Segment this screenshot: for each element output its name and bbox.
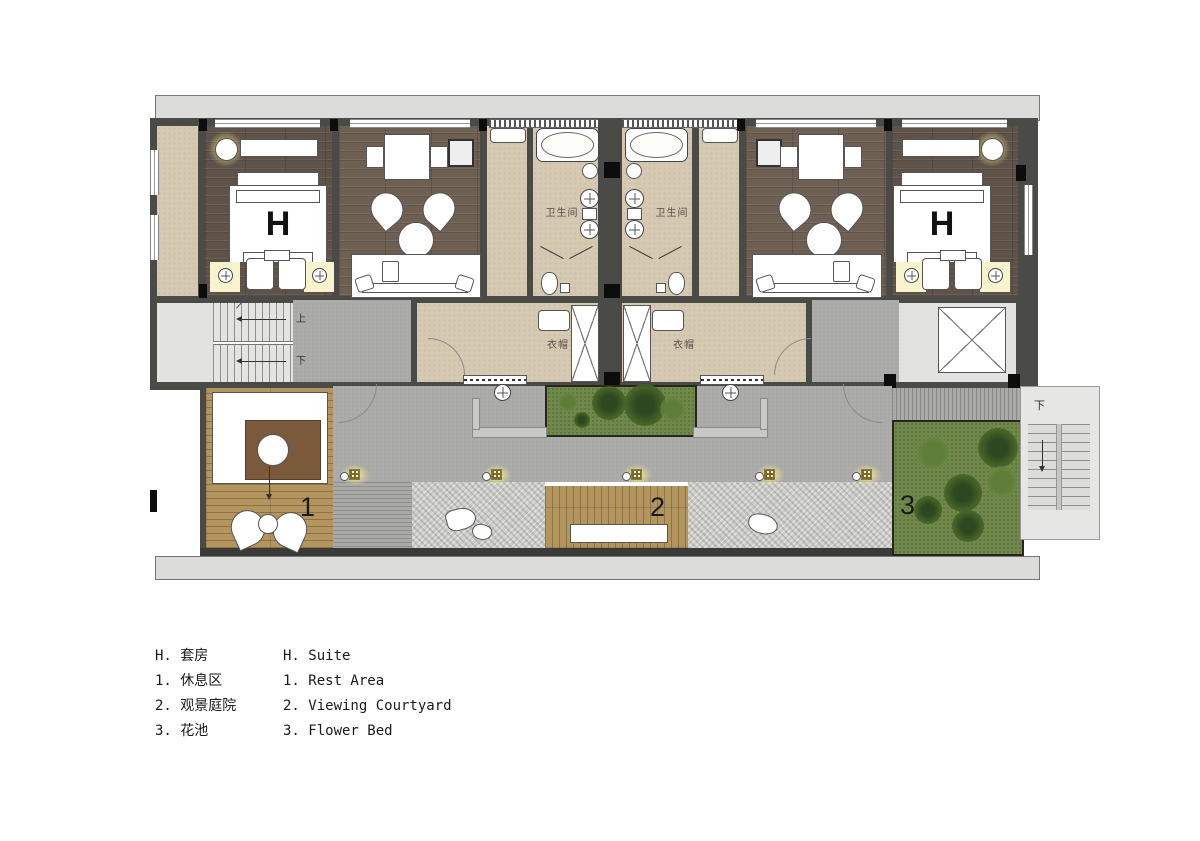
stair-up-label: 上 — [296, 314, 306, 326]
dining-table — [384, 134, 430, 180]
suite-left-marker: H — [266, 205, 291, 243]
column — [479, 119, 487, 131]
exterior-stairs-arrow-line — [1042, 440, 1043, 466]
wardrobe-right-label: 衣帽 — [666, 340, 702, 352]
bush — [574, 412, 590, 428]
legend-zh: 1. 休息区 — [155, 669, 283, 694]
sink — [625, 189, 644, 208]
sofa-tray — [833, 261, 850, 282]
bidet-box — [560, 283, 570, 293]
vanity-box — [582, 208, 597, 220]
bed-pillows — [236, 190, 320, 203]
floor-plan-page: H 卫生间 卫生间 — [0, 0, 1200, 841]
window-living-right — [756, 119, 876, 128]
column — [884, 119, 892, 131]
legend-en: 3. Flower Bed — [283, 719, 393, 744]
wall-light-icon — [491, 469, 502, 480]
wardrobe-bench — [652, 310, 684, 331]
planter-ledge-right — [693, 427, 768, 438]
column — [199, 119, 207, 131]
planter-return-right — [760, 398, 768, 430]
deck-arrow-line — [269, 466, 270, 494]
dining-chair — [366, 146, 384, 168]
stool — [278, 258, 306, 290]
bush — [916, 436, 950, 470]
bush — [914, 496, 942, 524]
window-bedroom-right — [902, 119, 1007, 128]
bidet-box — [656, 283, 666, 293]
bush — [944, 474, 982, 512]
stair-mid-divider — [213, 341, 293, 345]
bed-pillows — [900, 190, 984, 203]
sink — [580, 189, 599, 208]
exterior-stairs-arrowhead — [1039, 466, 1045, 472]
wall-light-dot — [755, 472, 764, 481]
window-west-wall-a — [150, 150, 159, 195]
bush — [660, 396, 686, 422]
downlight — [218, 268, 233, 283]
floor-light — [722, 384, 739, 401]
window-west-wall-b — [150, 215, 159, 260]
bush — [592, 386, 626, 420]
side-table — [264, 250, 290, 261]
legend-en: H. Suite — [283, 644, 350, 669]
wardrobe-bench — [538, 310, 570, 331]
stool — [922, 258, 950, 290]
window-living-left — [350, 119, 470, 128]
wall-light-icon — [349, 469, 360, 480]
legend-en: 2. Viewing Courtyard — [283, 694, 452, 719]
elevator — [938, 307, 1006, 373]
dining-chair — [844, 146, 862, 168]
legend-en: 1. Rest Area — [283, 669, 384, 694]
window-bath-right — [622, 119, 737, 128]
bush — [986, 466, 1018, 498]
legend-zh: H. 套房 — [155, 644, 283, 669]
stair-up-arrow-line — [242, 319, 286, 320]
legend-row: 2. 观景庭院2. Viewing Courtyard — [155, 694, 555, 719]
dining-table — [798, 134, 844, 180]
table-lamp — [981, 138, 1004, 161]
bathroom-right-label: 卫生间 — [652, 208, 692, 220]
shaft-column-top — [604, 162, 620, 178]
wall-light-dot — [340, 472, 349, 481]
stair-down-arrowhead — [236, 358, 242, 364]
side-corridor-left — [157, 126, 198, 296]
console-niche-left — [490, 128, 526, 143]
column — [150, 490, 157, 512]
console-niche-right — [702, 128, 738, 143]
suite-right-marker: H — [930, 205, 955, 243]
downlight — [988, 268, 1003, 283]
wall-light-icon — [631, 469, 642, 480]
shaft-column-mid — [604, 284, 620, 298]
vanity-box — [627, 208, 642, 220]
floor-light — [494, 384, 511, 401]
hall-right-floor — [812, 300, 899, 382]
viewing-courtyard-marker: 2 — [650, 492, 665, 523]
legend-row: 1. 休息区1. Rest Area — [155, 669, 555, 694]
bathtub-basin — [630, 132, 683, 158]
flower-bed-marker: 3 — [900, 490, 915, 521]
sink — [580, 220, 599, 239]
downlight — [312, 268, 327, 283]
legend: H. 套房H. Suite 1. 休息区1. Rest Area 2. 观景庭院… — [155, 644, 555, 744]
planter-return-left — [472, 398, 480, 430]
stair-down-label: 下 — [296, 356, 306, 368]
coffee-table — [806, 222, 842, 258]
planter-ledge-left — [472, 427, 547, 438]
dining-chair — [780, 146, 798, 168]
bathtub-basin — [541, 132, 594, 158]
terrace-south-wall — [200, 548, 892, 556]
column — [199, 284, 207, 298]
tv-console — [240, 139, 318, 157]
window-bath-left — [489, 119, 598, 128]
flowerbed-paving — [892, 388, 1020, 420]
lounge-table — [257, 434, 289, 466]
column — [737, 119, 745, 131]
exterior-stairs-stringer — [1056, 424, 1062, 510]
stair-landing — [157, 303, 213, 382]
niche-left-floor — [487, 126, 527, 296]
bush — [558, 392, 578, 412]
wardrobe-closet-right — [623, 305, 651, 382]
deck-arrowhead — [266, 494, 272, 500]
coffee-table — [398, 222, 434, 258]
bottom-eave — [155, 556, 1040, 580]
side-table — [940, 250, 966, 261]
sofa-seat — [362, 283, 468, 293]
wall-light-dot — [852, 472, 861, 481]
column — [1016, 165, 1026, 181]
legend-zh: 2. 观景庭院 — [155, 694, 283, 719]
terrace-steps — [333, 482, 412, 548]
dining-chair — [430, 146, 448, 168]
hall-left-floor — [293, 300, 411, 382]
column — [330, 119, 338, 131]
stool — [246, 258, 274, 290]
wall-light-dot — [622, 472, 631, 481]
bath-stool — [626, 163, 642, 179]
toilet — [541, 272, 558, 295]
wall-light-icon — [764, 469, 775, 480]
legend-row: H. 套房H. Suite — [155, 644, 555, 669]
stair-up-arrowhead — [236, 316, 242, 322]
legend-zh: 3. 花池 — [155, 719, 283, 744]
tv-set — [756, 139, 782, 167]
window-bedroom-left — [215, 119, 320, 128]
rest-area-marker: 1 — [300, 492, 315, 523]
window-east-wall — [1024, 185, 1033, 255]
tv-set — [448, 139, 474, 167]
downlight — [904, 268, 919, 283]
column — [1008, 374, 1020, 388]
courtyard-bench — [570, 524, 668, 543]
exterior-stairs-down-label: 下 — [1034, 400, 1045, 412]
bath-stool — [582, 163, 598, 179]
sofa-seat — [763, 283, 869, 293]
gravel-right — [688, 482, 892, 548]
bush — [952, 510, 984, 542]
sofa-tray — [382, 261, 399, 282]
wall-light-icon — [861, 469, 872, 480]
wardrobe-left-label: 衣帽 — [540, 340, 576, 352]
niche-right-floor — [699, 126, 739, 296]
deck-side-table — [258, 514, 278, 534]
table-lamp — [215, 138, 238, 161]
tv-console — [902, 139, 980, 157]
bush — [978, 428, 1018, 468]
toilet — [668, 272, 685, 295]
wall-light-dot — [482, 472, 491, 481]
stair-down-arrow-line — [242, 361, 286, 362]
sliding-threshold — [463, 375, 527, 385]
legend-row: 3. 花池3. Flower Bed — [155, 719, 555, 744]
sink — [625, 220, 644, 239]
shaft-column-bottom — [604, 372, 620, 386]
stool — [954, 258, 982, 290]
bathroom-left-label: 卫生间 — [542, 208, 582, 220]
